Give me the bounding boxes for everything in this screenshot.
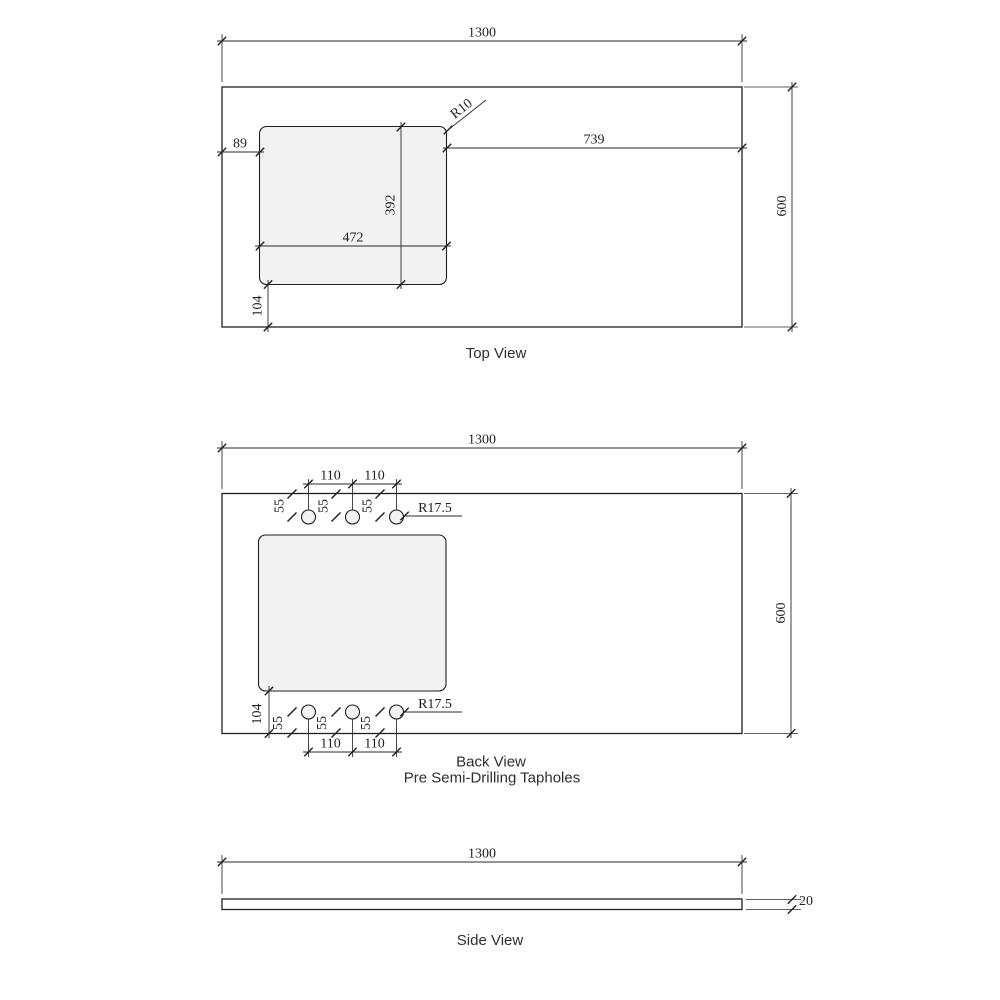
back-view-label: Back View [456,754,526,771]
side-view-label: Side View [457,932,524,949]
top-view-label: Top View [466,345,527,362]
tap-hole [346,705,360,719]
dimension-width: 1300 [217,433,747,490]
dim-text-edge-to-hole: 55 [361,499,376,513]
dim-text-cutout-width: 472 [343,231,364,246]
dim-text-hole-spacing: 110 [364,469,384,484]
dim-text-edge-to-hole: 55 [317,499,332,513]
tap-hole [302,705,316,719]
dimension-width: 1300 [217,847,747,895]
back-view: 1300 600 110 110 [217,433,798,787]
dim-text-cutout-height: 392 [384,195,399,216]
dimension-thickness: 20 [746,894,813,914]
dimension-width: 1300 [217,26,747,83]
dim-text-depth: 600 [775,196,790,217]
side-view-slab-outline [222,899,742,910]
dim-text-width: 1300 [468,847,496,862]
tap-hole [390,510,404,524]
tap-hole [346,510,360,524]
dim-text-hole-radius: R17.5 [418,501,452,516]
drawing-page: 1300 600 89 739 [0,0,1000,1000]
dim-text-offset-bottom: 104 [250,704,265,725]
sink-recess [259,535,447,691]
dim-text-hole-spacing: 110 [364,737,384,752]
tap-hole [302,510,316,524]
dimension-depth: 600 [744,488,798,738]
dim-text-hole-spacing: 110 [320,469,340,484]
technical-drawing: 1300 600 89 739 [0,0,1000,1000]
dim-text-thickness: 20 [799,894,813,909]
dim-text-offset-bottom: 104 [251,296,266,317]
dim-text-edge-to-hole: 55 [271,716,286,730]
back-view-sublabel: Pre Semi-Drilling Tapholes [404,770,580,787]
dim-text-offset-right: 739 [584,133,605,148]
tap-hole [390,705,404,719]
dim-text-offset-left: 89 [233,137,247,152]
dim-text-edge-to-hole: 55 [359,716,374,730]
dim-text-depth: 600 [774,603,789,624]
side-view: 1300 20 Side View [217,847,813,950]
dim-text-edge-to-hole: 55 [315,716,330,730]
top-view: 1300 600 89 739 [217,26,798,363]
dim-text-hole-radius: R17.5 [418,697,452,712]
dim-text-width: 1300 [468,433,496,448]
sink-cutout [260,127,447,285]
dim-text-edge-to-hole: 55 [273,499,288,513]
dim-text-hole-spacing: 110 [320,737,340,752]
dim-text-width: 1300 [468,26,496,41]
dimension-depth: 600 [744,82,798,332]
